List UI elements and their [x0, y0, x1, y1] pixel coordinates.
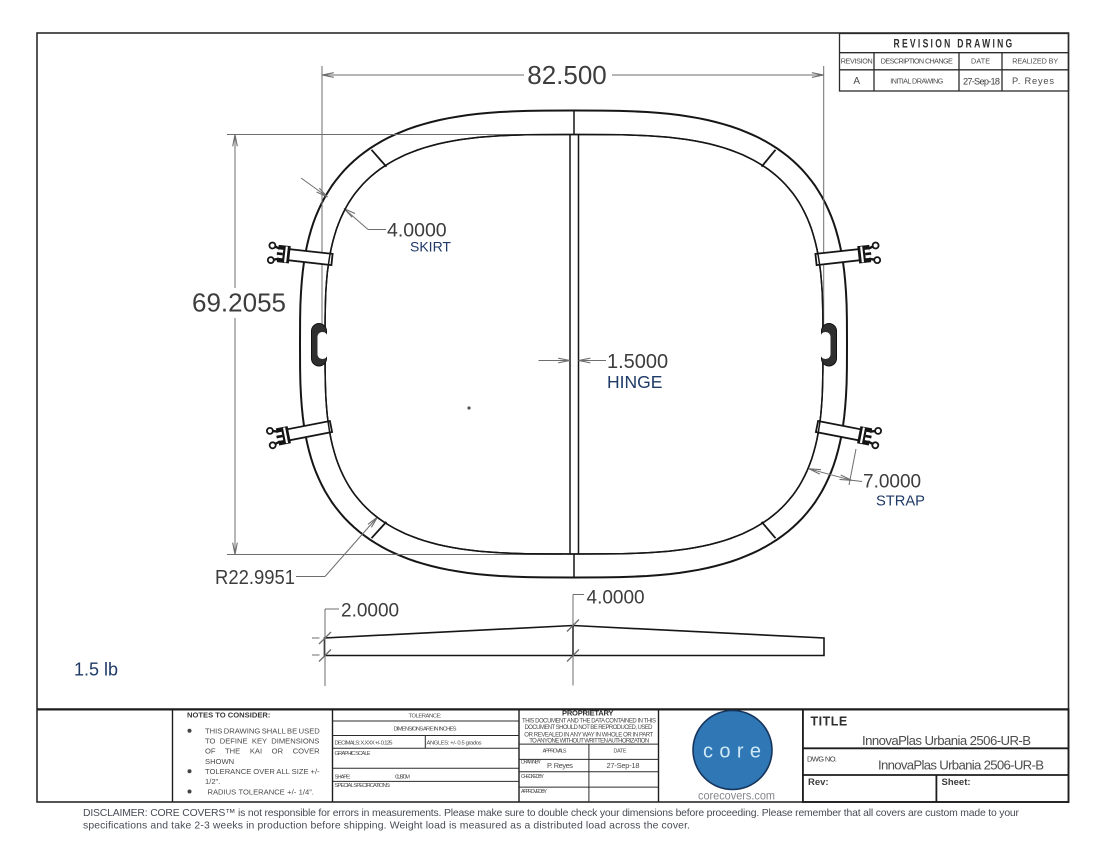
svg-text:4.0000: 4.0000 — [587, 588, 645, 609]
svg-text:TITLE: TITLE — [811, 715, 848, 729]
svg-text:ANGLES: +/- 0.5 grados: ANGLES: +/- 0.5 grados — [427, 741, 482, 747]
svg-text:TOLERANCE OVER ALL SIZE +/-: TOLERANCE OVER ALL SIZE +/- — [205, 767, 320, 776]
svg-text:82.500: 82.500 — [527, 60, 607, 90]
svg-text:PROPRIETARY: PROPRIETARY — [562, 708, 615, 717]
svg-text:DISCLAIMER: CORE COVERS™ is no: DISCLAIMER: CORE COVERS™ is not responsi… — [83, 808, 1020, 819]
svg-text:27-Sep-18: 27-Sep-18 — [607, 761, 640, 770]
svg-text:APPROVALS: APPROVALS — [543, 749, 567, 755]
svg-text:THIS DRAWING SHALL BE USED: THIS DRAWING SHALL BE USED — [205, 726, 320, 735]
svg-text:7.0000: 7.0000 — [863, 472, 921, 493]
svg-text:DWG NO.: DWG NO. — [807, 755, 837, 764]
svg-text:THIS DOCUMENT AND THE DATA CON: THIS DOCUMENT AND THE DATA CONTAINED IN … — [522, 718, 656, 724]
svg-text:DATE: DATE — [971, 57, 990, 66]
svg-text:OR REVEALED IN ANY WAY IN WHOL: OR REVEALED IN ANY WAY IN WHOLE OR IN PA… — [524, 732, 653, 738]
svg-text:CUSTOM: CUSTOM — [395, 774, 410, 780]
svg-text:APPROVED BY: APPROVED BY — [521, 789, 548, 795]
svg-text:1/2”.: 1/2”. — [205, 777, 220, 786]
svg-text:CHECKED BY: CHECKED BY — [521, 774, 545, 780]
svg-text:NOTES TO CONSIDER:: NOTES TO CONSIDER: — [187, 711, 270, 720]
svg-text:Sheet:: Sheet: — [942, 777, 971, 788]
svg-text:TOLERANCE:: TOLERANCE: — [409, 714, 442, 720]
svg-text:DECIMALS: X.XXX +/- 0.125: DECIMALS: X.XXX +/- 0.125 — [335, 741, 393, 747]
svg-text:69.2055: 69.2055 — [192, 288, 286, 318]
svg-text:REALIZED BY: REALIZED BY — [1012, 57, 1058, 66]
svg-text:STRAP: STRAP — [876, 494, 925, 510]
svg-text:1.5000: 1.5000 — [607, 351, 668, 373]
svg-text:TO DEFINE KEY DIMENSIONS: TO DEFINE KEY DIMENSIONS — [205, 737, 319, 746]
svg-text:SKIRT: SKIRT — [410, 239, 451, 255]
svg-text:GRAPHIC SCALE: GRAPHIC SCALE — [335, 751, 371, 757]
svg-text:DOCUMENT SHOULD NOT BE REPRODU: DOCUMENT SHOULD NOT BE REPRODUCED, USED — [525, 725, 654, 731]
svg-text:DATE: DATE — [614, 748, 627, 754]
svg-text:SHAPE:: SHAPE: — [335, 774, 351, 780]
svg-text:InnovaPlas Urbania 2506-UR-B: InnovaPlas Urbania 2506-UR-B — [878, 757, 1044, 772]
svg-text:1.5 lb: 1.5 lb — [74, 660, 118, 680]
svg-text:corecovers.com: corecovers.com — [698, 791, 775, 803]
svg-text:RADIUS TOLERANCE +/- 1/4”.: RADIUS TOLERANCE +/- 1/4”. — [208, 787, 314, 796]
svg-text:R22.9951: R22.9951 — [215, 567, 295, 589]
svg-text:specifications and take 2-3 we: specifications and take 2-3 weeks in pro… — [83, 821, 690, 832]
svg-text:P. Reyes: P. Reyes — [547, 761, 573, 770]
svg-text:REVISION: REVISION — [841, 57, 873, 66]
svg-text:SPECIAL SPECIFICATIONS:: SPECIAL SPECIFICATIONS: — [335, 783, 391, 789]
svg-text:TO ANYONE WITHOUT WRITTEN AUTH: TO ANYONE WITHOUT WRITTEN AUTHORIZATION — [529, 739, 649, 745]
svg-text:InnovaPlas Urbania 2506-UR-B: InnovaPlas Urbania 2506-UR-B — [862, 733, 1031, 748]
svg-text:Rev:: Rev: — [808, 777, 829, 788]
svg-text:P. Reyes: P. Reyes — [1012, 76, 1054, 86]
svg-text:DRAWN BY: DRAWN BY — [521, 759, 542, 765]
svg-text:HINGE: HINGE — [607, 372, 662, 392]
svg-text:A: A — [853, 76, 860, 87]
svg-text:SHOWN: SHOWN — [205, 757, 234, 766]
svg-text:2.0000: 2.0000 — [341, 601, 399, 622]
svg-text:DIMENSIONS ARE IN INCHES: DIMENSIONS ARE IN INCHES — [394, 727, 457, 733]
svg-text:REVISION DRAWING: REVISION DRAWING — [894, 37, 1015, 51]
svg-text:INITIAL DRAWING: INITIAL DRAWING — [890, 77, 943, 86]
svg-text:27-Sep-18: 27-Sep-18 — [963, 77, 1000, 87]
svg-text:DESCRIPTION CHANGE: DESCRIPTION CHANGE — [881, 57, 953, 66]
svg-text:OF THE KAI OR COVER: OF THE KAI OR COVER — [205, 747, 320, 756]
